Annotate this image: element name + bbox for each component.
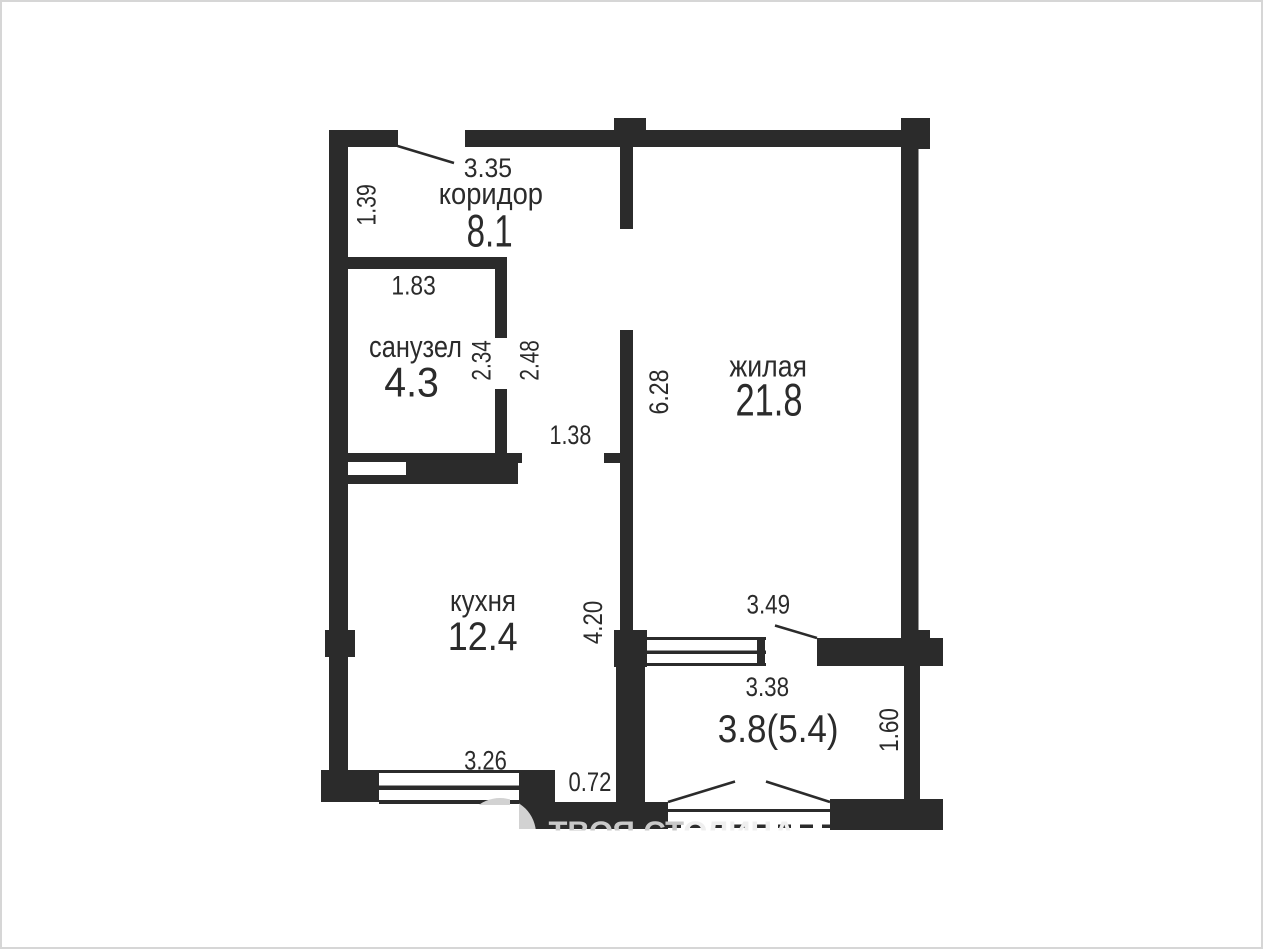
svg-text:1.39: 1.39 [351,184,381,225]
svg-text:6.28: 6.28 [644,370,674,415]
svg-text:1.38: 1.38 [550,420,592,450]
svg-text:1.83: 1.83 [391,270,435,300]
svg-text:21.8: 21.8 [736,374,803,425]
svg-text:2.34: 2.34 [466,340,496,380]
svg-text:3.26: 3.26 [464,746,507,776]
svg-text:4.3: 4.3 [384,358,439,405]
svg-text:кухня: кухня [450,583,516,618]
svg-text:3.49: 3.49 [747,590,791,620]
svg-text:12.4: 12.4 [448,615,518,659]
svg-text:3.38: 3.38 [746,672,790,702]
svg-text:2.48: 2.48 [515,340,545,380]
svg-text:1.60: 1.60 [874,708,904,752]
svg-text:4.20: 4.20 [578,601,608,644]
svg-text:3.8(5.4): 3.8(5.4) [718,708,839,751]
svg-text:8.1: 8.1 [467,205,513,256]
svg-text:0.72: 0.72 [569,767,612,797]
